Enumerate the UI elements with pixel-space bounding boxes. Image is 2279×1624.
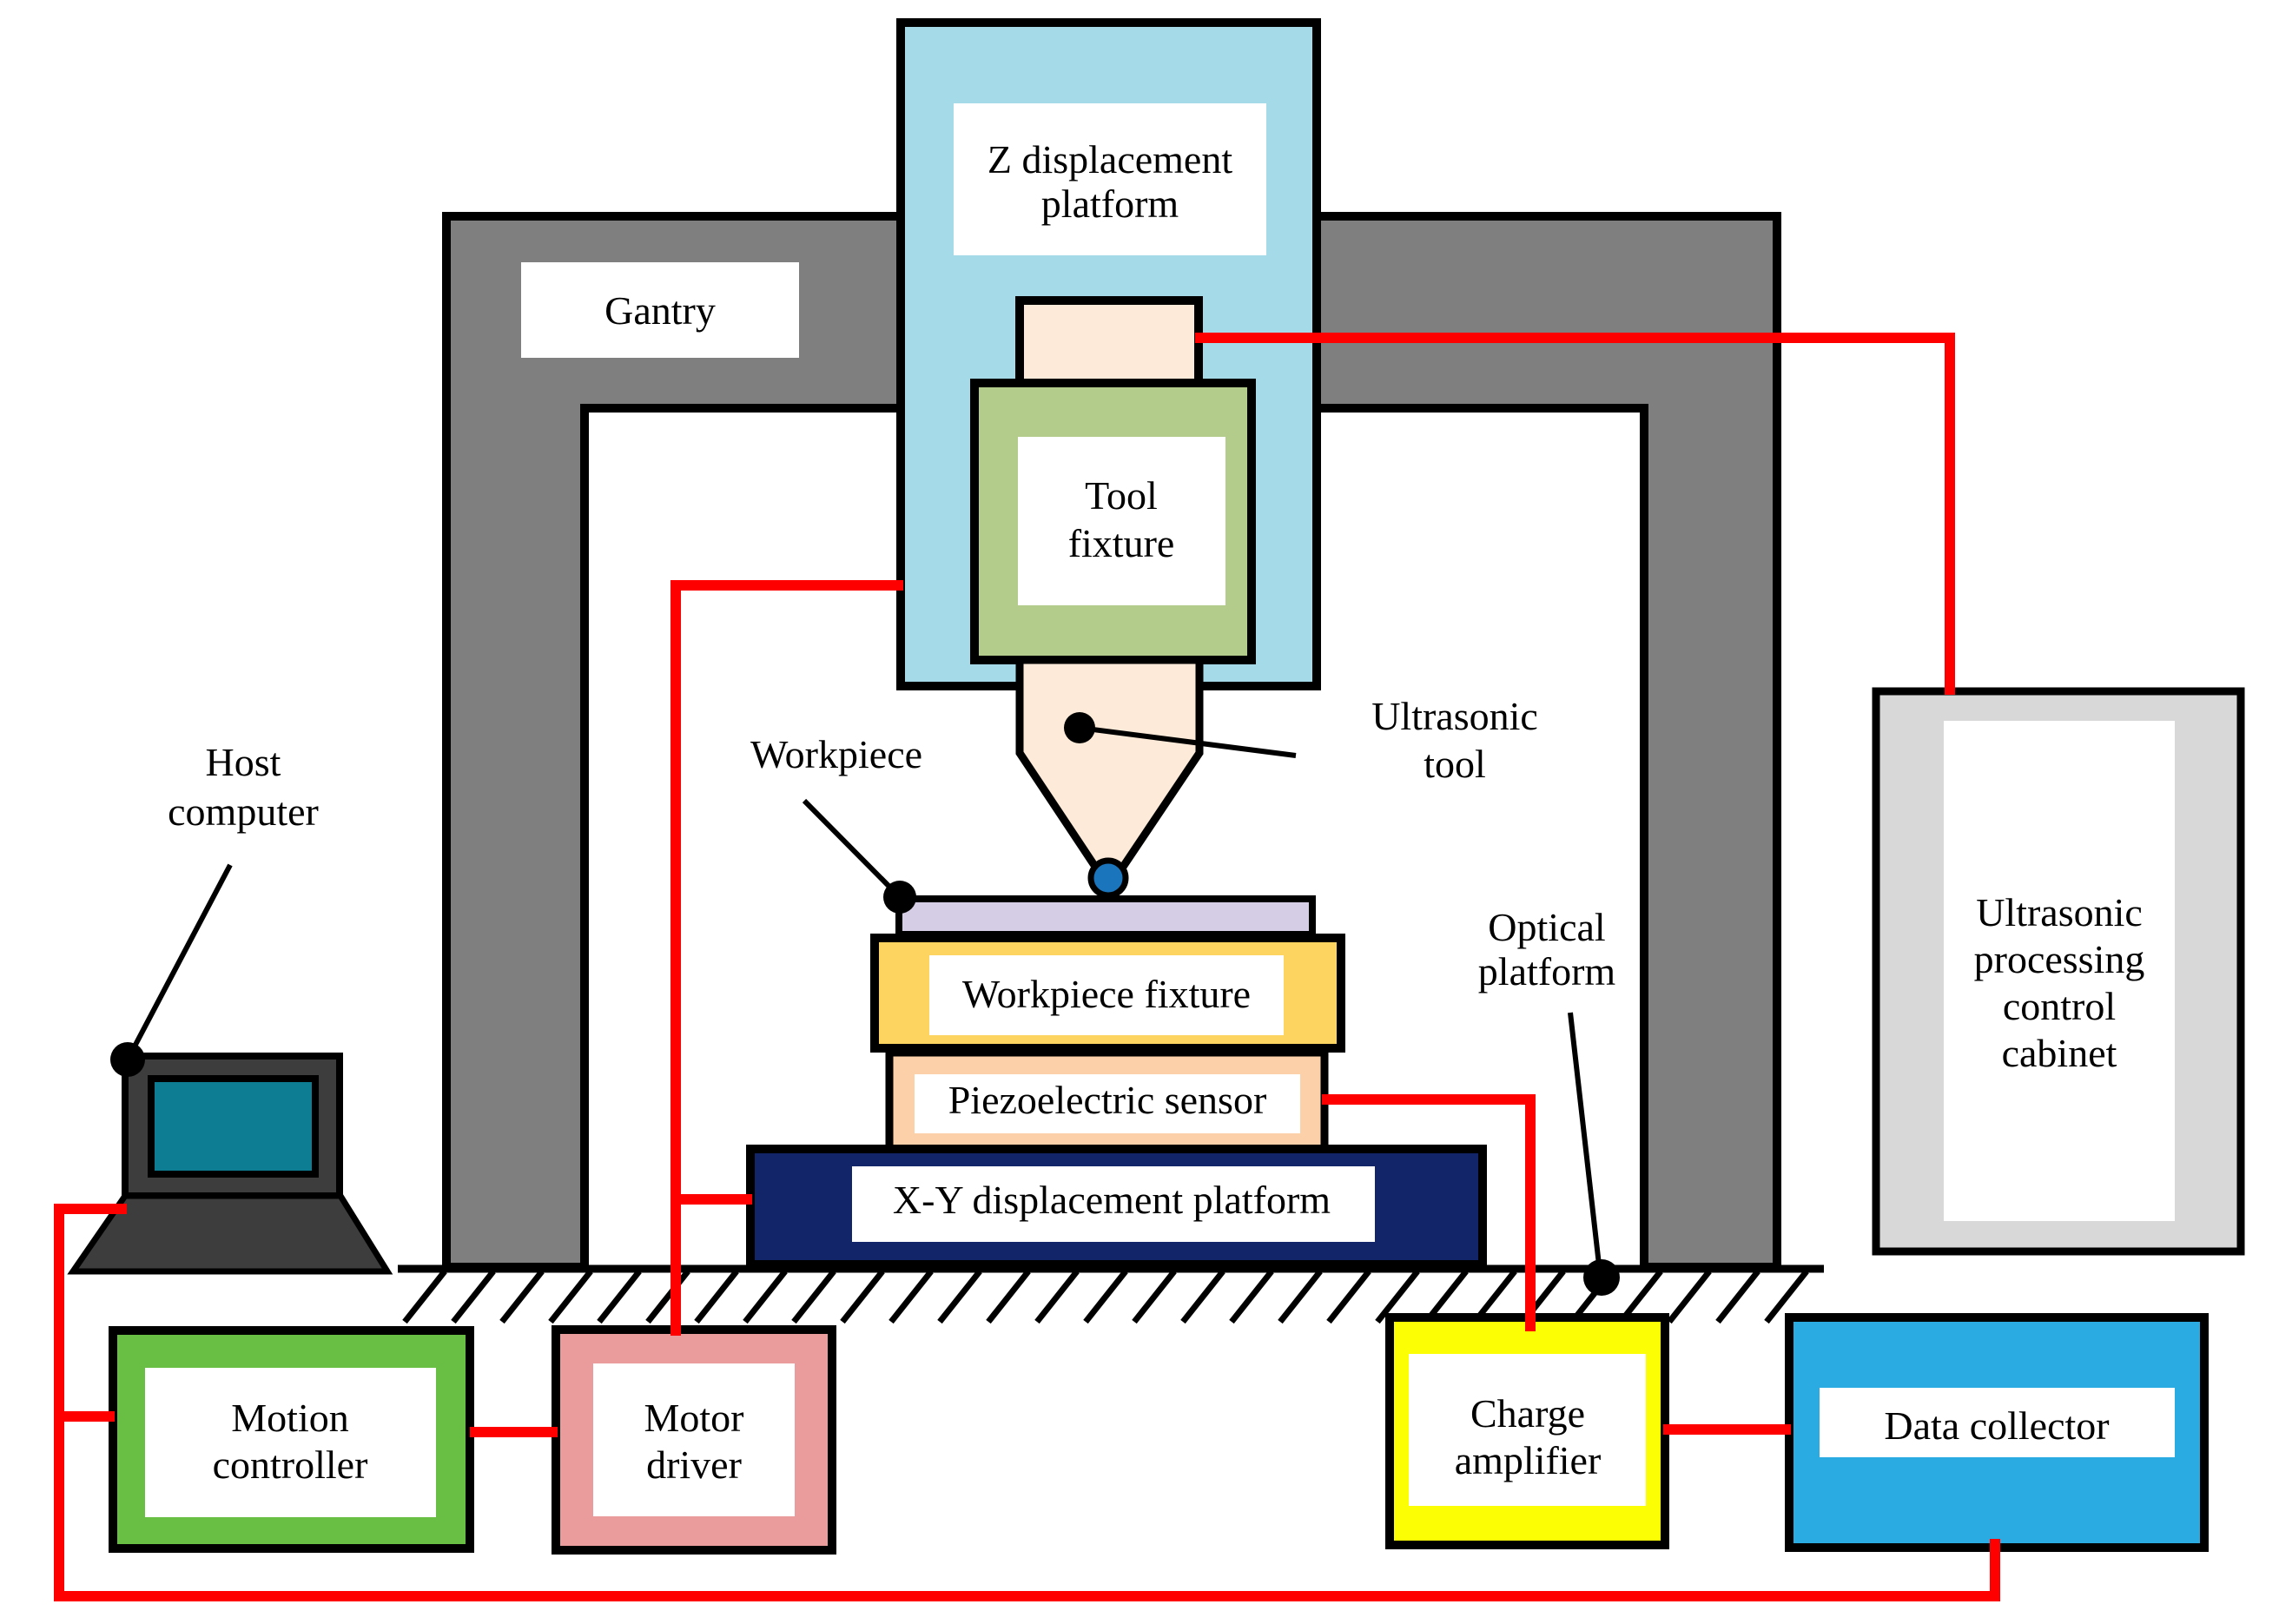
svg-text:Tool: Tool (1085, 473, 1158, 518)
svg-text:Piezoelectric sensor: Piezoelectric sensor (948, 1078, 1267, 1122)
svg-text:Ultrasonic: Ultrasonic (1371, 694, 1538, 738)
svg-text:control: control (2003, 984, 2116, 1028)
svg-text:X-Y displacement platform: X-Y displacement platform (893, 1178, 1331, 1222)
svg-text:Z displacement: Z displacement (988, 137, 1233, 182)
svg-text:controller: controller (213, 1442, 368, 1487)
svg-text:fixture: fixture (1068, 521, 1175, 565)
svg-text:Motion: Motion (231, 1396, 348, 1440)
svg-text:tool: tool (1424, 742, 1486, 786)
svg-text:Workpiece fixture: Workpiece fixture (962, 972, 1251, 1016)
svg-text:Workpiece: Workpiece (750, 732, 922, 776)
svg-text:Ultrasonic: Ultrasonic (1976, 890, 2143, 934)
svg-text:platform: platform (1478, 949, 1616, 994)
svg-text:cabinet: cabinet (2002, 1031, 2117, 1075)
svg-text:processing: processing (1974, 937, 2145, 981)
svg-text:Motor: Motor (644, 1396, 744, 1440)
svg-text:amplifier: amplifier (1455, 1438, 1602, 1482)
svg-text:Data collector: Data collector (1884, 1403, 2109, 1448)
svg-text:platform: platform (1041, 182, 1179, 226)
svg-text:Charge: Charge (1470, 1391, 1585, 1436)
svg-text:Optical: Optical (1488, 905, 1605, 949)
svg-text:Gantry: Gantry (604, 288, 716, 333)
svg-text:Host: Host (206, 740, 281, 784)
svg-text:computer: computer (168, 789, 319, 834)
svg-text:driver: driver (646, 1442, 742, 1487)
